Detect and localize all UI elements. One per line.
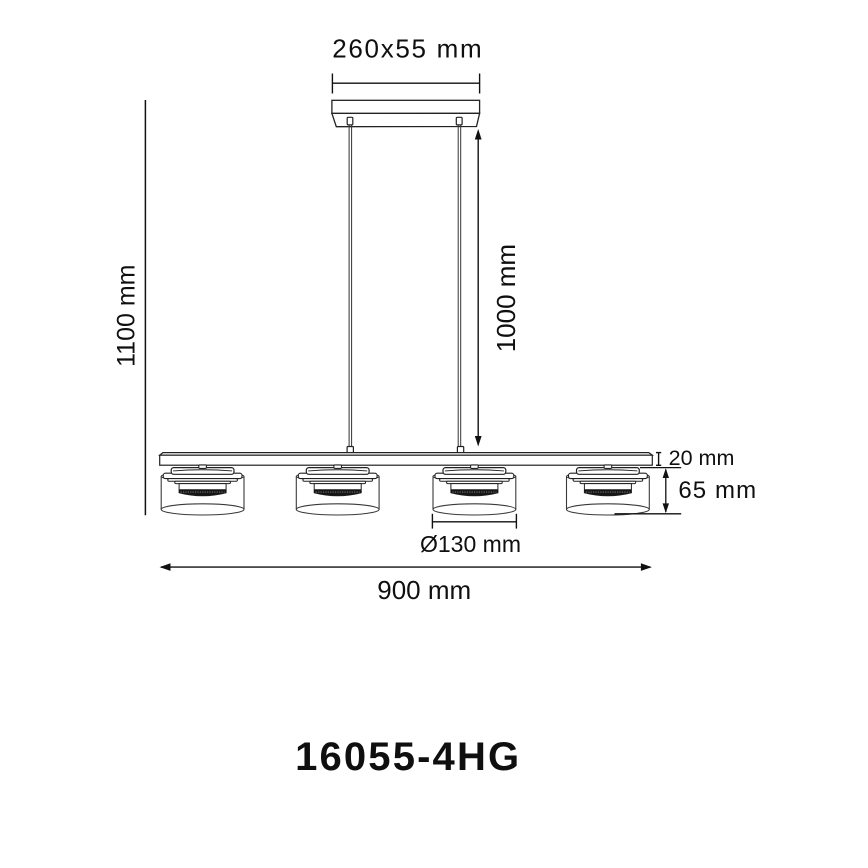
svg-text:260x55 mm: 260x55 mm <box>332 34 483 64</box>
svg-text:Ø130 mm: Ø130 mm <box>420 531 521 557</box>
svg-text:65 mm: 65 mm <box>678 477 757 504</box>
svg-text:20 mm: 20 mm <box>669 446 735 470</box>
svg-text:16055-4HG: 16055-4HG <box>295 735 521 779</box>
svg-text:900 mm: 900 mm <box>377 575 471 605</box>
svg-text:1000 mm: 1000 mm <box>491 244 521 352</box>
svg-text:1100 mm: 1100 mm <box>113 265 141 367</box>
